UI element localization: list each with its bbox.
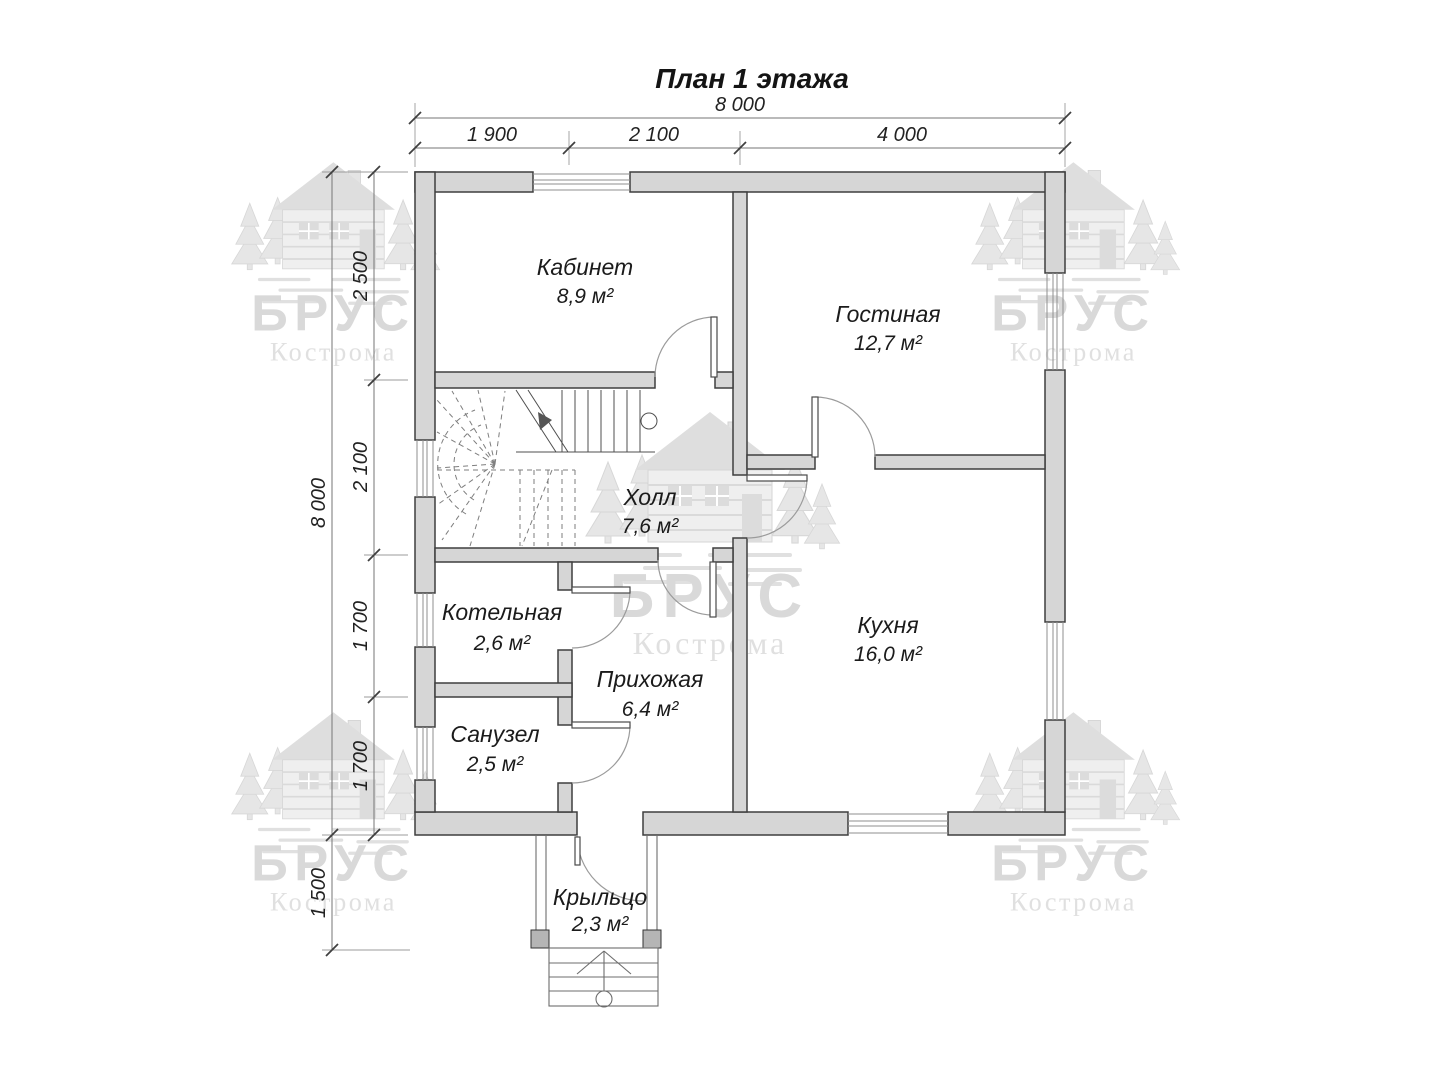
room-area-living: 12,7 м² (854, 332, 923, 355)
window-kitchen-bottom (848, 814, 948, 833)
room-label-entry: Прихожая (597, 666, 704, 692)
wall-left-segment-1 (415, 172, 435, 440)
room-area-hall: 7,6 м² (622, 515, 679, 538)
wall-right-segment-1 (1045, 172, 1065, 273)
wall-office-bottom-stub (715, 372, 733, 388)
dim-top-seg-1: 1 900 (467, 124, 517, 146)
watermark-top-right (972, 162, 1180, 366)
wall-top-right-segment (630, 172, 1065, 192)
room-area-boiler: 2,6 м² (473, 632, 531, 655)
room-area-bath: 2,5 м² (466, 753, 524, 776)
wall-hall-bottom-stub (713, 548, 733, 562)
porch-post-right (643, 930, 661, 948)
window-office-top (533, 174, 630, 190)
wall-living-kitchen-right (875, 455, 1045, 469)
room-label-porch: Крыльцо (553, 884, 647, 910)
wall-bottom-middle-segment (643, 812, 848, 835)
door-bath (572, 722, 630, 783)
room-area-office: 8,9 м² (557, 285, 614, 308)
stair-direction-arrow (538, 412, 552, 430)
wall-hall-bottom (435, 548, 658, 562)
dim-top-seg-3: 4 000 (877, 124, 927, 146)
door-office (655, 317, 717, 377)
dim-left-seg-4: 1 700 (350, 741, 372, 791)
wall-boiler-bath-divider (435, 683, 572, 697)
watermark-bottom-left (232, 712, 440, 916)
room-label-kitchen: Кухня (857, 612, 918, 638)
dim-left-seg-1: 2 500 (350, 251, 372, 302)
room-label-office: Кабинет (537, 254, 633, 280)
window-stairs-left (417, 440, 433, 497)
dim-left-total: 8 000 (308, 478, 330, 528)
wall-bath-entry-bottom (558, 783, 572, 812)
wall-left-segment-2 (415, 497, 435, 593)
dim-top-seg-2: 2 100 (628, 124, 679, 146)
dim-top-total: 8 000 (715, 94, 765, 116)
wall-entry-kitchen-divider (733, 538, 747, 812)
room-label-bath: Санузел (450, 721, 539, 747)
wall-living-kitchen-left (747, 455, 815, 469)
wall-right-segment-3 (1045, 720, 1065, 812)
wall-bottom-right-segment (948, 812, 1065, 835)
room-area-entry: 6,4 м² (622, 698, 679, 721)
room-label-living: Гостиная (835, 301, 940, 327)
room-area-kitchen: 16,0 м² (854, 643, 923, 666)
wall-left-segment-4 (415, 780, 435, 812)
wall-office-bottom (435, 372, 655, 388)
dim-left-seg-2: 2 100 (350, 442, 372, 493)
dimensions-top: 8 000 1 900 2 100 4 000 (409, 94, 1071, 167)
wall-bottom-left-segment (415, 812, 577, 835)
floor-plan-canvas: БРУС Кострома План 1 этажа 8 000 1 900 2… (0, 0, 1440, 1080)
window-kitchen-right (1047, 622, 1063, 720)
dim-left-seg-3: 1 700 (350, 601, 372, 651)
wall-boiler-entry-top (558, 562, 572, 590)
page-title: План 1 этажа (655, 63, 849, 94)
room-area-porch: 2,3 м² (571, 913, 629, 936)
wall-right-segment-2 (1045, 370, 1065, 622)
window-boiler-left (417, 593, 433, 647)
wall-hall-living-divider (733, 192, 747, 475)
stair-newel-post (641, 413, 657, 429)
watermark-top-left (232, 162, 440, 366)
porch-up-arrow (577, 951, 631, 1007)
room-label-hall: Холл (622, 484, 676, 510)
room-label-boiler: Котельная (442, 599, 562, 625)
dim-left-porch: 1 500 (308, 868, 330, 918)
wall-left-segment-3 (415, 647, 435, 727)
porch-post-left (531, 930, 549, 948)
door-living (812, 397, 875, 457)
